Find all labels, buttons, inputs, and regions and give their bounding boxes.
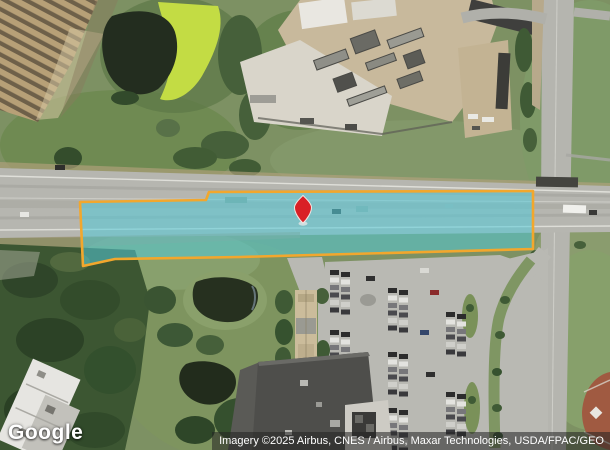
satellite-map-canvas[interactable]: Google Imagery ©2025 Airbus, CNES / Airb… [0,0,610,450]
google-logo[interactable]: Google [8,421,83,445]
attribution-text: Imagery ©2025 Airbus, CNES / Airbus, Max… [219,435,604,447]
map-attribution: Imagery ©2025 Airbus, CNES / Airbus, Max… [212,432,610,450]
